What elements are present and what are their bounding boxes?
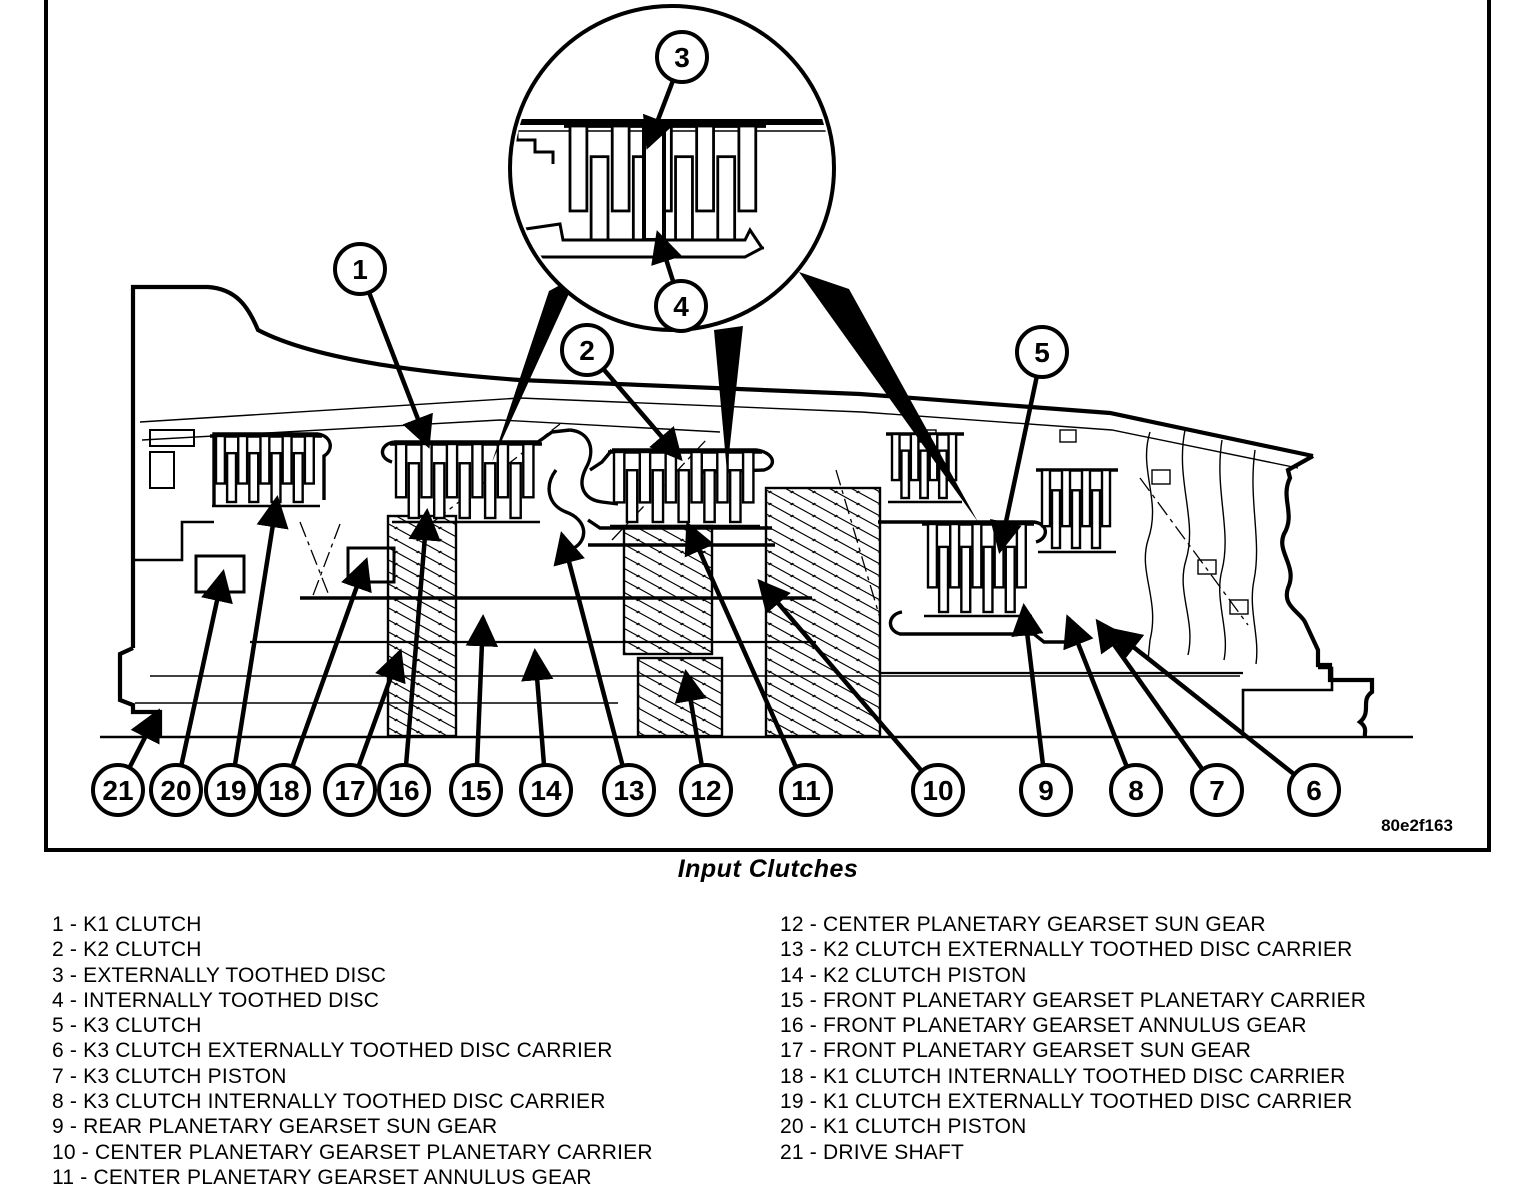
legend-item-12: 12 - CENTER PLANETARY GEARSET SUN GEAR [780,912,1366,937]
legend-item-21: 21 - DRIVE SHAFT [780,1140,1366,1165]
k1-clutch-pack [390,444,542,522]
legend-item-20: 20 - K1 CLUTCH PISTON [780,1114,1366,1139]
legend-item-5: 5 - K3 CLUTCH [52,1013,653,1038]
legend-item-16: 16 - FRONT PLANETARY GEARSET ANNULUS GEA… [780,1013,1366,1038]
wedge-to-k3 [799,272,978,522]
legend-item-10: 10 - CENTER PLANETARY GEARSET PLANETARY … [52,1140,653,1165]
callout-number-13: 13 [613,775,644,806]
callout-leader-1 [360,269,428,445]
k1-ext-carrier-pack [210,436,322,506]
wedge-to-k1 [492,276,577,462]
callout-number-18: 18 [268,775,299,806]
legend-item-13: 13 - K2 CLUTCH EXTERNALLY TOOTHED DISC C… [780,937,1366,962]
callout-number-19: 19 [215,775,246,806]
legend-item-4: 4 - INTERNALLY TOOTHED DISC [52,988,653,1013]
figure-code: 80e2f163 [1381,816,1453,835]
callout-number-12: 12 [690,775,721,806]
legend-item-14: 14 - K2 CLUTCH PISTON [780,963,1366,988]
callout-number-1: 1 [352,254,368,285]
legend-item-15: 15 - FRONT PLANETARY GEARSET PLANETARY C… [780,988,1366,1013]
legend-item-1: 1 - K1 CLUTCH [52,912,653,937]
case-outline [120,287,1372,737]
transmission-cross-section [100,287,1413,737]
callout-15: 15 [451,618,501,815]
callout-number-5: 5 [1034,337,1050,368]
callout-number-4: 4 [673,291,689,322]
callout-number-2: 2 [579,335,595,366]
legend-item-6: 6 - K3 CLUTCH EXTERNALLY TOOTHED DISC CA… [52,1038,653,1063]
callout-2: 2 [562,325,680,458]
callout-21: 21 [93,712,158,815]
externally-toothed-disc [644,122,664,240]
callout-number-20: 20 [160,775,191,806]
callout-number-17: 17 [334,775,365,806]
callout-9: 9 [1021,607,1071,815]
callout-number-3: 3 [674,42,690,73]
figure-caption: Input Clutches [0,855,1536,884]
k3-clutch-pack [922,524,1034,616]
input-clutches-diagram: 123456789101112131415161718192021 80e2f1… [0,0,1536,855]
legend-item-19: 19 - K1 CLUTCH EXTERNALLY TOOTHED DISC C… [780,1089,1366,1114]
callout-number-10: 10 [922,775,953,806]
k3-upper-right-pack [1036,470,1118,552]
callout-leader-7 [1098,622,1217,790]
legend-item-11: 11 - CENTER PLANETARY GEARSET ANNULUS GE… [52,1165,653,1188]
legend-column-left: 1 - K1 CLUTCH2 - K2 CLUTCH3 - EXTERNALLY… [52,912,653,1188]
callout-number-7: 7 [1209,775,1225,806]
legend-item-2: 2 - K2 CLUTCH [52,937,653,962]
callout-number-6: 6 [1306,775,1322,806]
callout-number-8: 8 [1128,775,1144,806]
legend-item-3: 3 - EXTERNALLY TOOTHED DISC [52,963,653,988]
callout-1: 1 [335,244,428,445]
legend-item-8: 8 - K3 CLUTCH INTERNALLY TOOTHED DISC CA… [52,1089,653,1114]
legend-column-right: 12 - CENTER PLANETARY GEARSET SUN GEAR13… [780,912,1366,1165]
callout-number-9: 9 [1038,775,1054,806]
callout-number-11: 11 [791,775,821,806]
center-sun-gear [638,658,722,736]
callout-number-16: 16 [388,775,419,806]
page: 123456789101112131415161718192021 80e2f1… [0,0,1536,1188]
callout-number-14: 14 [530,775,562,806]
callout-number-15: 15 [460,775,491,806]
legend-item-9: 9 - REAR PLANETARY GEARSET SUN GEAR [52,1114,653,1139]
legend-item-7: 7 - K3 CLUTCH PISTON [52,1064,653,1089]
k2-clutch-pack [608,452,762,526]
callout-leader-13 [562,535,629,790]
callout-19: 19 [206,499,277,815]
callout-leader-19 [231,499,277,790]
callout-number-21: 21 [102,775,133,806]
legend-item-17: 17 - FRONT PLANETARY GEARSET SUN GEAR [780,1038,1366,1063]
legend-item-18: 18 - K1 CLUTCH INTERNALLY TOOTHED DISC C… [780,1064,1366,1089]
callout-leader-20 [176,573,223,790]
